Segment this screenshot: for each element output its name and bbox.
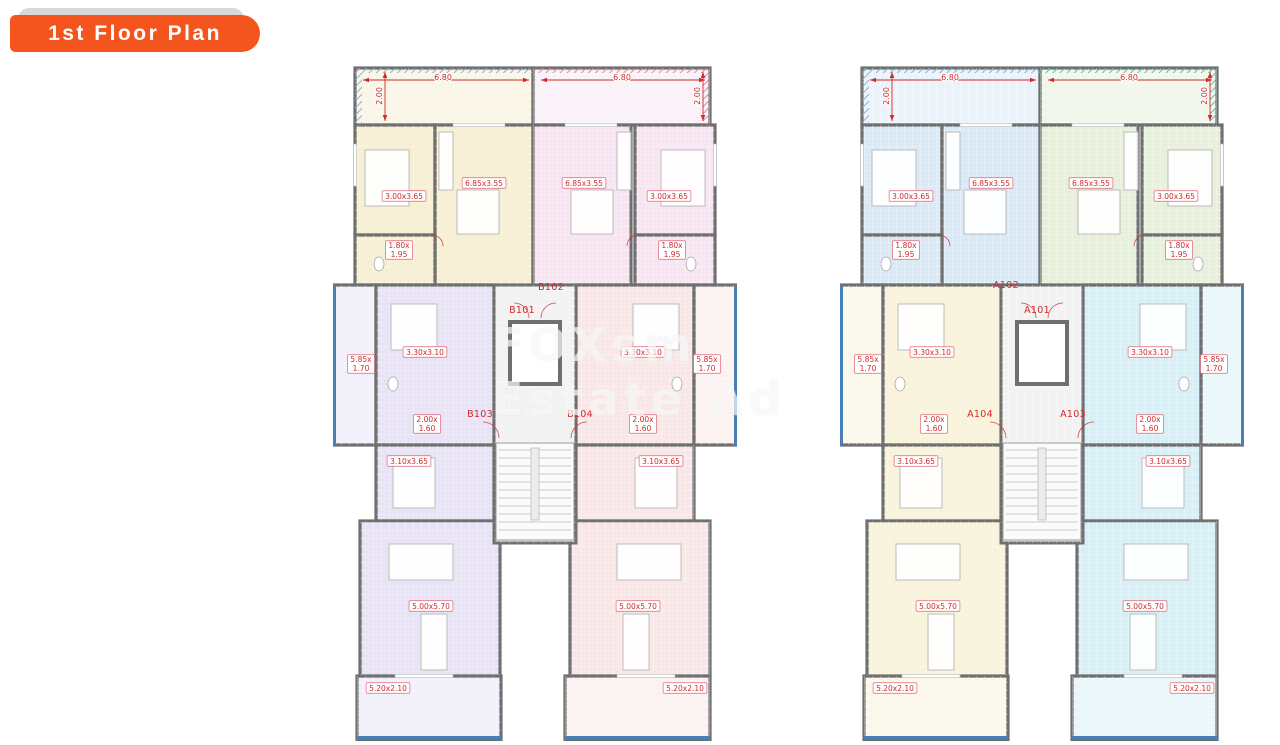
svg-text:2.00: 2.00 — [1200, 87, 1209, 105]
page-title: 1st Floor Plan — [48, 22, 222, 46]
svg-text:6.80: 6.80 — [941, 73, 959, 82]
dimension-label: 5.20x2.10 — [1170, 683, 1214, 694]
svg-text:2.00x: 2.00x — [632, 415, 654, 424]
toilet-fixture — [1193, 257, 1203, 271]
window — [1220, 144, 1223, 186]
window — [713, 144, 716, 186]
svg-text:1.70: 1.70 — [353, 364, 370, 373]
floor-plan-building-a: 6.806.802.002.003.00x3.653.00x3.656.85x3… — [840, 66, 1244, 741]
window — [354, 144, 357, 186]
unit-label-A101: A101 — [1024, 305, 1050, 316]
dimension-label: 2.00 — [1200, 87, 1209, 105]
dimension-label: 3.10x3.65 — [894, 456, 938, 467]
svg-text:6.85x3.55: 6.85x3.55 — [972, 179, 1010, 188]
svg-text:6.80: 6.80 — [613, 73, 631, 82]
dimension-label: 5.00x5.70 — [409, 601, 453, 612]
svg-text:5.85x: 5.85x — [696, 355, 718, 364]
dimension-label: 3.30x3.10 — [1128, 347, 1172, 358]
svg-text:1.70: 1.70 — [699, 364, 716, 373]
svg-text:5.85x: 5.85x — [857, 355, 879, 364]
elevator-shaft — [510, 322, 560, 384]
elevator-shaft — [1017, 322, 1067, 384]
svg-text:2.00x: 2.00x — [1139, 415, 1161, 424]
page-title-badge: 1st Floor Plan — [10, 15, 260, 52]
dimension-label: 3.00x3.65 — [382, 191, 426, 202]
svg-text:3.00x3.65: 3.00x3.65 — [1157, 192, 1195, 201]
dimension-label: 5.20x2.10 — [663, 683, 707, 694]
dimension-label: 5.00x5.70 — [1123, 601, 1167, 612]
dimension-label: 1.80x1.95 — [659, 241, 686, 260]
dimension-label: 5.20x2.10 — [873, 683, 917, 694]
dimension-label: 5.00x5.70 — [616, 601, 660, 612]
svg-text:3.30x3.10: 3.30x3.10 — [1131, 348, 1169, 357]
svg-text:3.10x3.65: 3.10x3.65 — [390, 457, 428, 466]
svg-text:3.00x3.65: 3.00x3.65 — [650, 192, 688, 201]
svg-text:1.80x: 1.80x — [388, 241, 410, 250]
svg-text:2.00: 2.00 — [693, 87, 702, 105]
svg-text:3.30x3.10: 3.30x3.10 — [624, 348, 662, 357]
dimension-label: 5.85x1.70 — [855, 355, 882, 374]
svg-text:5.00x5.70: 5.00x5.70 — [619, 602, 657, 611]
dimension-label: 2.00x1.60 — [921, 415, 948, 434]
svg-text:5.20x2.10: 5.20x2.10 — [876, 684, 914, 693]
window — [565, 123, 617, 126]
svg-text:5.85x: 5.85x — [350, 355, 372, 364]
svg-text:6.80: 6.80 — [434, 73, 452, 82]
dimension-label: 1.80x1.95 — [1166, 241, 1193, 260]
window — [1072, 123, 1124, 126]
dimension-label: 3.30x3.10 — [403, 347, 447, 358]
dimension-label: 3.10x3.65 — [639, 456, 683, 467]
svg-text:1.95: 1.95 — [898, 250, 915, 259]
dimension-label: 3.10x3.65 — [387, 456, 431, 467]
dimension-label: 6.80 — [434, 73, 452, 82]
svg-text:1.60: 1.60 — [635, 424, 652, 433]
staircase — [496, 443, 574, 540]
svg-text:2.00: 2.00 — [882, 87, 891, 105]
svg-text:1.95: 1.95 — [1171, 250, 1188, 259]
svg-text:1.80x: 1.80x — [1168, 241, 1190, 250]
svg-text:3.10x3.65: 3.10x3.65 — [1149, 457, 1187, 466]
svg-text:5.00x5.70: 5.00x5.70 — [412, 602, 450, 611]
svg-text:1.80x: 1.80x — [661, 241, 683, 250]
svg-text:5.00x5.70: 5.00x5.70 — [1126, 602, 1164, 611]
dimension-label: 2.00x1.60 — [414, 415, 441, 434]
svg-text:5.20x2.10: 5.20x2.10 — [666, 684, 704, 693]
window — [960, 123, 1012, 126]
dimension-label: 3.00x3.65 — [647, 191, 691, 202]
toilet-fixture — [1179, 377, 1189, 391]
dimension-label: 2.00 — [882, 87, 891, 105]
page: 1st Floor Plan 6.806.802.002.003.00x3.65… — [0, 0, 1280, 745]
floor-plan-building-b: 6.806.802.002.003.00x3.653.00x3.656.85x3… — [333, 66, 737, 741]
svg-text:2.00: 2.00 — [375, 87, 384, 105]
dimension-label: 3.10x3.65 — [1146, 456, 1190, 467]
dimension-label: 6.85x3.55 — [969, 178, 1013, 189]
terrace-hatch-left — [355, 68, 362, 125]
svg-text:3.10x3.65: 3.10x3.65 — [642, 457, 680, 466]
dimension-label: 6.80 — [941, 73, 959, 82]
dimension-label: 6.85x3.55 — [462, 178, 506, 189]
dimension-label: 5.20x2.10 — [366, 683, 410, 694]
svg-text:6.85x3.55: 6.85x3.55 — [565, 179, 603, 188]
toilet-fixture — [672, 377, 682, 391]
svg-text:6.85x3.55: 6.85x3.55 — [465, 179, 503, 188]
svg-text:1.60: 1.60 — [926, 424, 943, 433]
svg-text:1.95: 1.95 — [391, 250, 408, 259]
unit-label-B102: B102 — [538, 282, 564, 293]
unit-label-A104: A104 — [967, 409, 993, 420]
dimension-label: 3.00x3.65 — [889, 191, 933, 202]
svg-text:3.00x3.65: 3.00x3.65 — [385, 192, 423, 201]
dimension-label: 6.80 — [1120, 73, 1138, 82]
dimension-label: 2.00 — [693, 87, 702, 105]
svg-text:1.70: 1.70 — [860, 364, 877, 373]
dimension-label: 3.30x3.10 — [621, 347, 665, 358]
svg-text:2.00x: 2.00x — [923, 415, 945, 424]
window — [617, 674, 675, 677]
unit-label-B101: B101 — [509, 305, 535, 316]
dimension-label: 6.80 — [613, 73, 631, 82]
svg-text:5.00x5.70: 5.00x5.70 — [919, 602, 957, 611]
svg-text:5.85x: 5.85x — [1203, 355, 1225, 364]
svg-text:3.30x3.10: 3.30x3.10 — [913, 348, 951, 357]
dimension-label: 3.00x3.65 — [1154, 191, 1198, 202]
dimension-label: 1.80x1.95 — [893, 241, 920, 260]
toilet-fixture — [895, 377, 905, 391]
toilet-fixture — [388, 377, 398, 391]
svg-text:1.95: 1.95 — [664, 250, 681, 259]
dimension-label: 5.85x1.70 — [694, 355, 721, 374]
window — [395, 674, 453, 677]
window — [861, 144, 864, 186]
svg-text:3.30x3.10: 3.30x3.10 — [406, 348, 444, 357]
toilet-fixture — [881, 257, 891, 271]
dimension-label: 2.00x1.60 — [1137, 415, 1164, 434]
svg-text:1.70: 1.70 — [1206, 364, 1223, 373]
unit-label-B104: B104 — [567, 409, 593, 420]
svg-text:5.20x2.10: 5.20x2.10 — [1173, 684, 1211, 693]
dimension-label: 5.85x1.70 — [1201, 355, 1228, 374]
svg-text:5.20x2.10: 5.20x2.10 — [369, 684, 407, 693]
svg-text:6.80: 6.80 — [1120, 73, 1138, 82]
svg-text:1.60: 1.60 — [1142, 424, 1159, 433]
toilet-fixture — [686, 257, 696, 271]
unit-label-A102: A102 — [993, 280, 1019, 291]
dimension-label: 5.00x5.70 — [916, 601, 960, 612]
dimension-label: 3.30x3.10 — [910, 347, 954, 358]
svg-text:3.10x3.65: 3.10x3.65 — [897, 457, 935, 466]
dimension-label: 2.00 — [375, 87, 384, 105]
window — [902, 674, 960, 677]
unit-label-B103: B103 — [467, 409, 493, 420]
svg-text:1.80x: 1.80x — [895, 241, 917, 250]
svg-text:6.85x3.55: 6.85x3.55 — [1072, 179, 1110, 188]
svg-text:1.60: 1.60 — [419, 424, 436, 433]
dimension-label: 6.85x3.55 — [1069, 178, 1113, 189]
svg-text:2.00x: 2.00x — [416, 415, 438, 424]
window — [1124, 674, 1182, 677]
dimension-label: 6.85x3.55 — [562, 178, 606, 189]
staircase — [1003, 443, 1081, 540]
svg-text:3.00x3.65: 3.00x3.65 — [892, 192, 930, 201]
unit-label-A103: A103 — [1060, 409, 1086, 420]
dimension-label: 1.80x1.95 — [386, 241, 413, 260]
terrace-hatch-left — [862, 68, 869, 125]
dimension-label: 5.85x1.70 — [348, 355, 375, 374]
dimension-label: 2.00x1.60 — [630, 415, 657, 434]
window — [453, 123, 505, 126]
toilet-fixture — [374, 257, 384, 271]
